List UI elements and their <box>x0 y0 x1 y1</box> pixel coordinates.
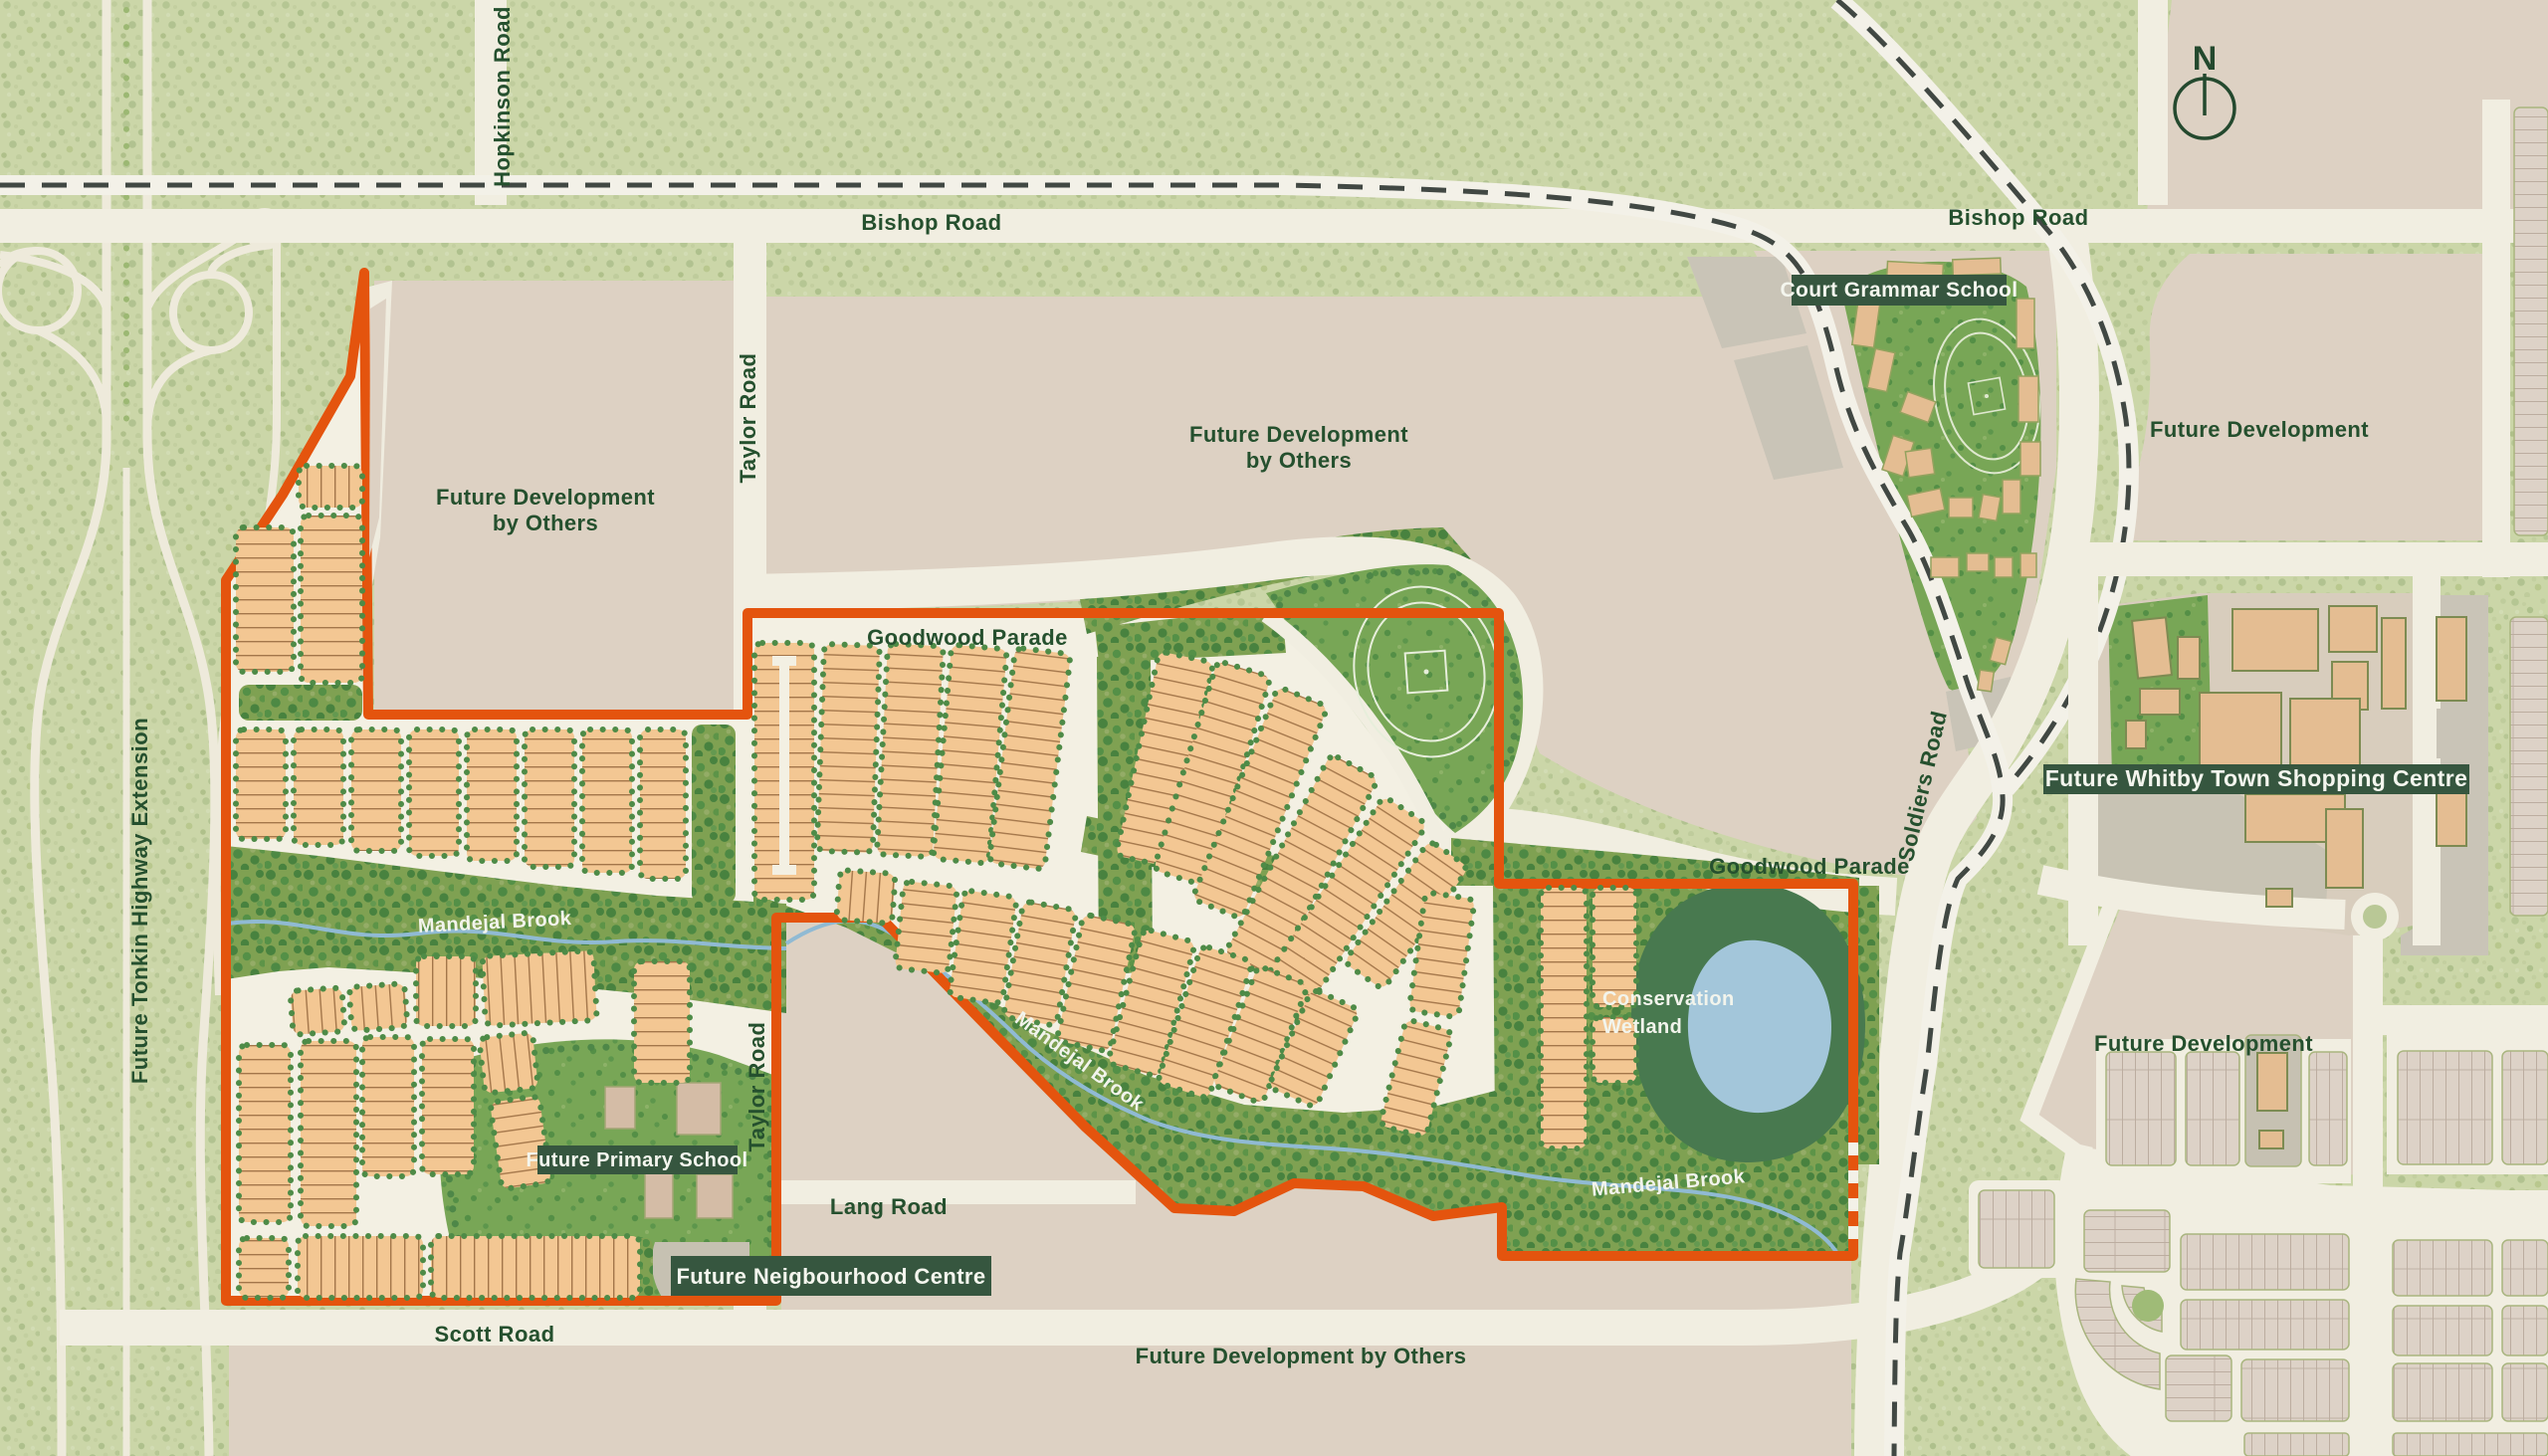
svg-text:Goodwood Parade: Goodwood Parade <box>867 625 1068 650</box>
svg-text:Taylor Road: Taylor Road <box>736 352 760 483</box>
svg-text:Taylor Road: Taylor Road <box>744 1021 769 1151</box>
svg-text:Future Tonkin Highway Extensio: Future Tonkin Highway Extension <box>127 718 152 1084</box>
svg-text:by Others: by Others <box>493 511 598 535</box>
svg-text:Future Whitby Town Shopping Ce: Future Whitby Town Shopping Centre <box>2045 765 2468 791</box>
svg-text:Wetland: Wetland <box>1602 1016 1682 1038</box>
svg-text:Future Development by Others: Future Development by Others <box>1136 1344 1467 1368</box>
svg-text:Future Development: Future Development <box>1189 422 1408 447</box>
svg-text:Future Development: Future Development <box>436 485 655 510</box>
svg-text:N: N <box>2193 40 2218 78</box>
svg-text:Court Grammar School: Court Grammar School <box>1780 279 2017 302</box>
svg-text:by Others: by Others <box>1246 448 1352 473</box>
svg-text:Bishop Road: Bishop Road <box>861 210 1001 235</box>
svg-text:Bishop Road: Bishop Road <box>1948 205 2088 230</box>
svg-text:Conservation: Conservation <box>1602 988 1735 1010</box>
svg-text:Future Neigbourhood Centre: Future Neigbourhood Centre <box>676 1264 985 1289</box>
svg-text:Hopkinson Road: Hopkinson Road <box>490 6 515 187</box>
svg-text:Future Development: Future Development <box>2094 1031 2313 1056</box>
svg-text:Scott Road: Scott Road <box>434 1322 554 1347</box>
svg-text:Future Development: Future Development <box>2150 417 2369 442</box>
svg-text:Goodwood Parade: Goodwood Parade <box>1709 854 1910 879</box>
svg-text:Lang Road: Lang Road <box>830 1194 948 1219</box>
svg-text:Future Primary School: Future Primary School <box>527 1149 748 1171</box>
